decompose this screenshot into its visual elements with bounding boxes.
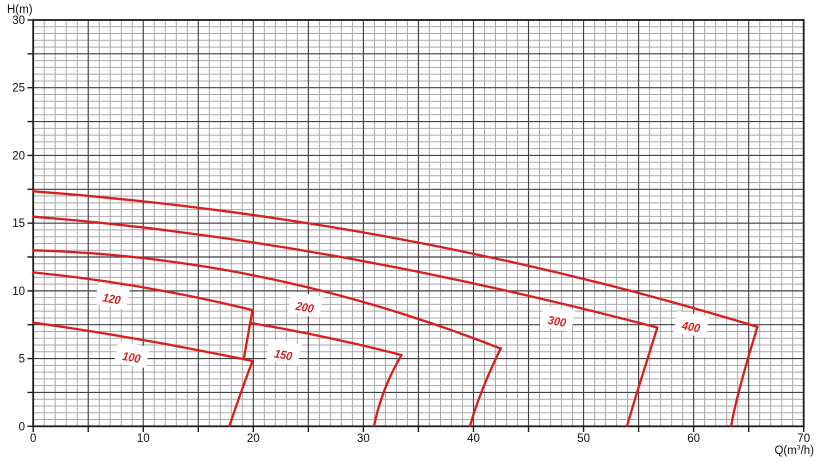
svg-text:10: 10 (137, 433, 150, 445)
svg-text:50: 50 (577, 433, 590, 445)
svg-text:10: 10 (12, 286, 25, 298)
svg-text:20: 20 (12, 150, 25, 162)
svg-text:25: 25 (12, 83, 25, 95)
svg-text:30: 30 (12, 15, 25, 27)
svg-text:5: 5 (19, 354, 25, 366)
svg-text:60: 60 (687, 433, 700, 445)
svg-text:30: 30 (357, 433, 370, 445)
svg-text:15: 15 (12, 218, 25, 230)
svg-text:70: 70 (797, 433, 810, 445)
svg-text:0: 0 (19, 421, 25, 433)
svg-text:Q(m3/h): Q(m3/h) (774, 445, 814, 457)
svg-text:40: 40 (467, 433, 480, 445)
svg-text:20: 20 (247, 433, 260, 445)
svg-text:0: 0 (30, 433, 36, 445)
